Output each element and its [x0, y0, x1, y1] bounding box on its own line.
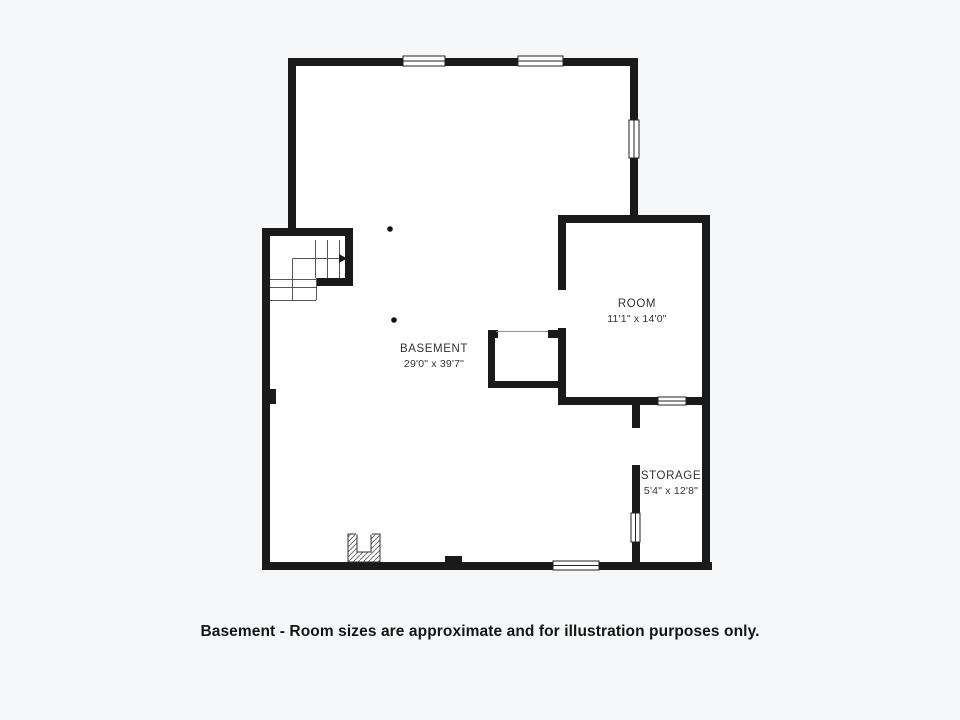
support-post-icon: [387, 226, 393, 232]
room-label: ROOM 11'1" x 14'0": [557, 298, 717, 326]
storage-room-name: STORAGE: [611, 470, 731, 483]
storage-label: STORAGE 5'4" x 12'8": [611, 470, 731, 498]
basement-room-name: BASEMENT: [354, 343, 514, 356]
window-icon: [629, 120, 639, 158]
basement-room-dimensions: 29'0" x 39'7": [354, 358, 514, 371]
support-post-icon: [391, 317, 397, 323]
fireplace-icon: [348, 533, 380, 562]
caption: Basement - Room sizes are approximate an…: [0, 623, 960, 641]
wall-bump: [445, 556, 462, 562]
storage-room-dimensions: 5'4" x 12'8": [611, 485, 731, 498]
wall-pilaster: [270, 389, 276, 404]
floorplan-canvas: BASEMENT 29'0" x 39'7" ROOM 11'1" x 14'0…: [0, 0, 960, 720]
basement-label: BASEMENT 29'0" x 39'7": [354, 343, 514, 371]
room-dimensions: 11'1" x 14'0": [557, 313, 717, 326]
window-icon: [631, 513, 640, 542]
window-icon: [403, 56, 445, 66]
window-icon: [658, 397, 686, 405]
room-name: ROOM: [557, 298, 717, 311]
window-icon: [518, 56, 563, 66]
window-icon: [553, 561, 599, 570]
